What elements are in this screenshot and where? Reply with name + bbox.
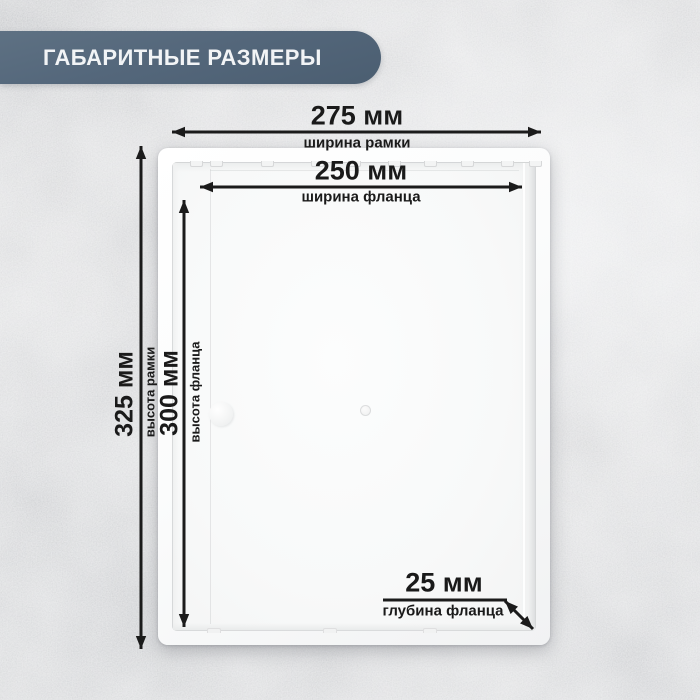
- panel-center-dimple: [360, 405, 371, 416]
- flange-width-label: ширина фланца: [301, 189, 420, 206]
- clip-tab: [424, 161, 437, 167]
- frame-height-value: 325 мм: [111, 351, 140, 437]
- flange-width-value: 250 мм: [315, 156, 408, 187]
- clip-tab: [461, 161, 474, 167]
- flange-depth-value: 25 мм: [405, 568, 482, 599]
- frame-width-label: ширина рамки: [303, 135, 410, 152]
- frame-width-value: 275 мм: [311, 101, 404, 132]
- flange-height-value: 300 мм: [156, 350, 185, 436]
- page-title: ГАБАРИТНЫЕ РАЗМЕРЫ: [43, 45, 322, 71]
- panel-side-bump: [209, 402, 233, 426]
- clip-tab: [210, 161, 223, 167]
- product-dimensions-image: ГАБАРИТНЫЕ РАЗМЕРЫ: [0, 0, 700, 700]
- flange-depth-label: глубина фланца: [382, 603, 503, 620]
- flange-height-label: высота фланца: [188, 342, 203, 443]
- clip-tab: [529, 161, 542, 167]
- flange-wall-right: [519, 163, 535, 630]
- title-banner: ГАБАРИТНЫЕ РАЗМЕРЫ: [0, 31, 381, 84]
- flange-wall-bottom: [173, 623, 535, 630]
- clip-tab: [190, 161, 203, 167]
- bottom-clip-mark: [423, 628, 437, 633]
- clip-tab: [501, 161, 514, 167]
- access-panel-flange: [172, 162, 536, 631]
- clip-tab: [261, 161, 274, 167]
- bottom-clip-mark: [323, 628, 337, 633]
- bottom-clip-mark: [207, 628, 221, 633]
- access-panel-frame: [158, 148, 550, 645]
- door-edge-line: [210, 169, 211, 624]
